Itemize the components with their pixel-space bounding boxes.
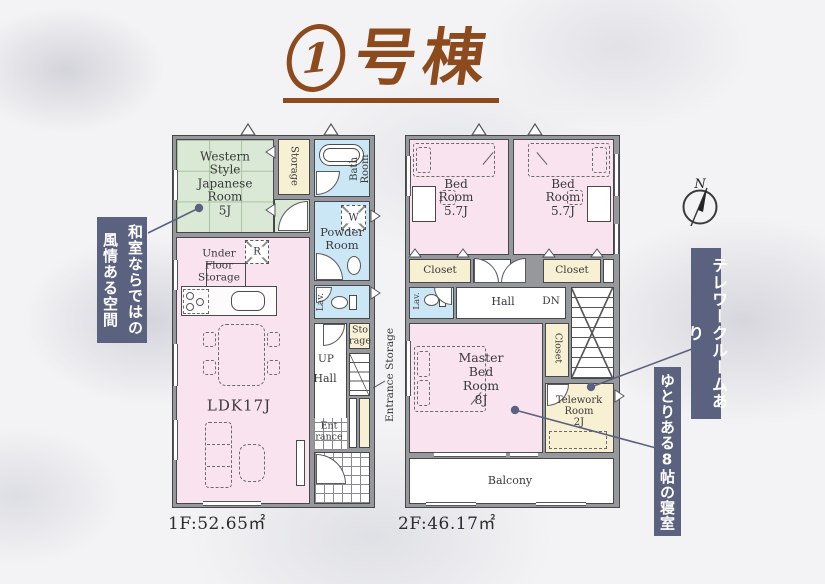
storage-top-label: Storage [288,146,299,186]
hall-label-2f: Hall [491,296,514,308]
window [536,502,586,506]
bedroom2-label: Bed Room 5.7J [546,178,581,218]
vent-triangle-icon [472,124,486,135]
closet3-label: Closet [552,333,563,363]
master-bedroom-label: Master Bed Room 8J [458,351,503,407]
balcony-label: Balcony [488,475,532,487]
up-label: UP [318,354,334,366]
floor1-plan: W R Western Style Japanese Room 5J St [172,135,375,508]
under-floor-storage-label: Under Floor Storage [198,248,240,283]
window [173,260,178,290]
tv-icon [296,440,305,486]
sofa [205,422,232,488]
storage-mid-label: Sto rage [349,325,371,346]
lav-label-2f: Lav. [413,292,423,309]
burner-icon [186,303,194,311]
compass-icon: N [684,177,717,226]
building-number: 1 [301,33,331,83]
burner-icon [196,298,204,306]
compass-circle [684,191,717,224]
lav-label-1f: Lav. [316,293,326,311]
hall-label-1f: Hall [313,373,336,385]
bedroom2-doorway [603,259,614,283]
hall-strip [349,398,357,448]
telework-desk [549,431,607,449]
sofa-cushion-line [207,466,230,467]
entrance-storage-label: Entrance Storage [385,328,397,422]
floor1-area-label: 1F:52.65㎡ [168,509,266,534]
pillow [417,380,430,406]
compass-needle-line [691,188,707,226]
burner-icon [186,292,194,300]
desk-bedroom1 [412,186,436,222]
toilet-bowl-icon [331,296,348,309]
window [614,154,619,196]
compass-needle-fill [698,188,707,212]
fridge-label: R [251,247,263,258]
dn-label: DN [542,296,560,308]
toilet-tank-icon [349,295,357,310]
stairs-1f [349,353,370,396]
desk-bedroom2 [587,186,611,222]
compass-north-label: N [693,177,706,192]
pillow [417,351,430,377]
window [173,344,178,386]
window [406,341,411,396]
floor2-plan: Bed Room 5.7J Bed Room 5.7J Closet Close… [405,135,620,508]
fridge-box-icon: R [245,240,269,264]
window [173,420,178,460]
window [434,452,506,457]
dining-chair [203,360,216,375]
dining-table [218,324,265,386]
bedroom1-label: Bed Room 5.7J [439,178,474,218]
window [614,224,619,254]
page-title-inner: 1 号棟 [282,24,496,92]
floorplan-sheet: 1 号棟 W [0,0,825,584]
window [510,452,538,457]
entrance-label: Ent rance [315,421,342,442]
building-number-circle-icon: 1 [286,21,347,95]
window [173,170,178,200]
pillow [416,147,431,173]
dining-chair [267,332,280,347]
powder-room-label: Powder Room [320,226,364,252]
window [426,502,476,506]
sofa-cushion-line [207,444,230,445]
room-entrance-storage [359,398,370,448]
telework-label: Telework Room 2J [556,395,602,429]
pillow [592,147,607,173]
banner-japanese-room-note: 和室ならではの風情ある空間 [97,217,147,343]
building-suffix: 号棟 [351,27,496,89]
dining-chair [203,332,216,347]
window [406,156,411,196]
japanese-room-label: Western Style Japanese Room 5J [198,150,253,217]
washer-label: W [346,212,360,223]
closet2-label: Closet [555,265,589,277]
vent-triangle-icon [528,124,542,135]
dining-chair [267,360,280,375]
window [203,501,261,506]
kitchen-sink-icon [231,291,265,311]
vent-triangle-icon [241,124,255,135]
page-title: 1 号棟 [283,24,499,103]
living-table [239,444,265,482]
floor2-area-label: 2F:46.17㎡ [398,509,496,534]
bath-room-label: Bath Room [349,154,371,183]
banner-telework-note: テレワークルームあり [691,248,721,419]
closet1-label: Closet [423,265,457,277]
ldk-label: LDK17J [207,398,271,415]
vent-triangle-icon [324,124,338,135]
sink-icon [347,256,361,275]
banner-master-note: ゆとりある8帖の寝室 [654,367,681,536]
stairs-2f [571,287,614,379]
